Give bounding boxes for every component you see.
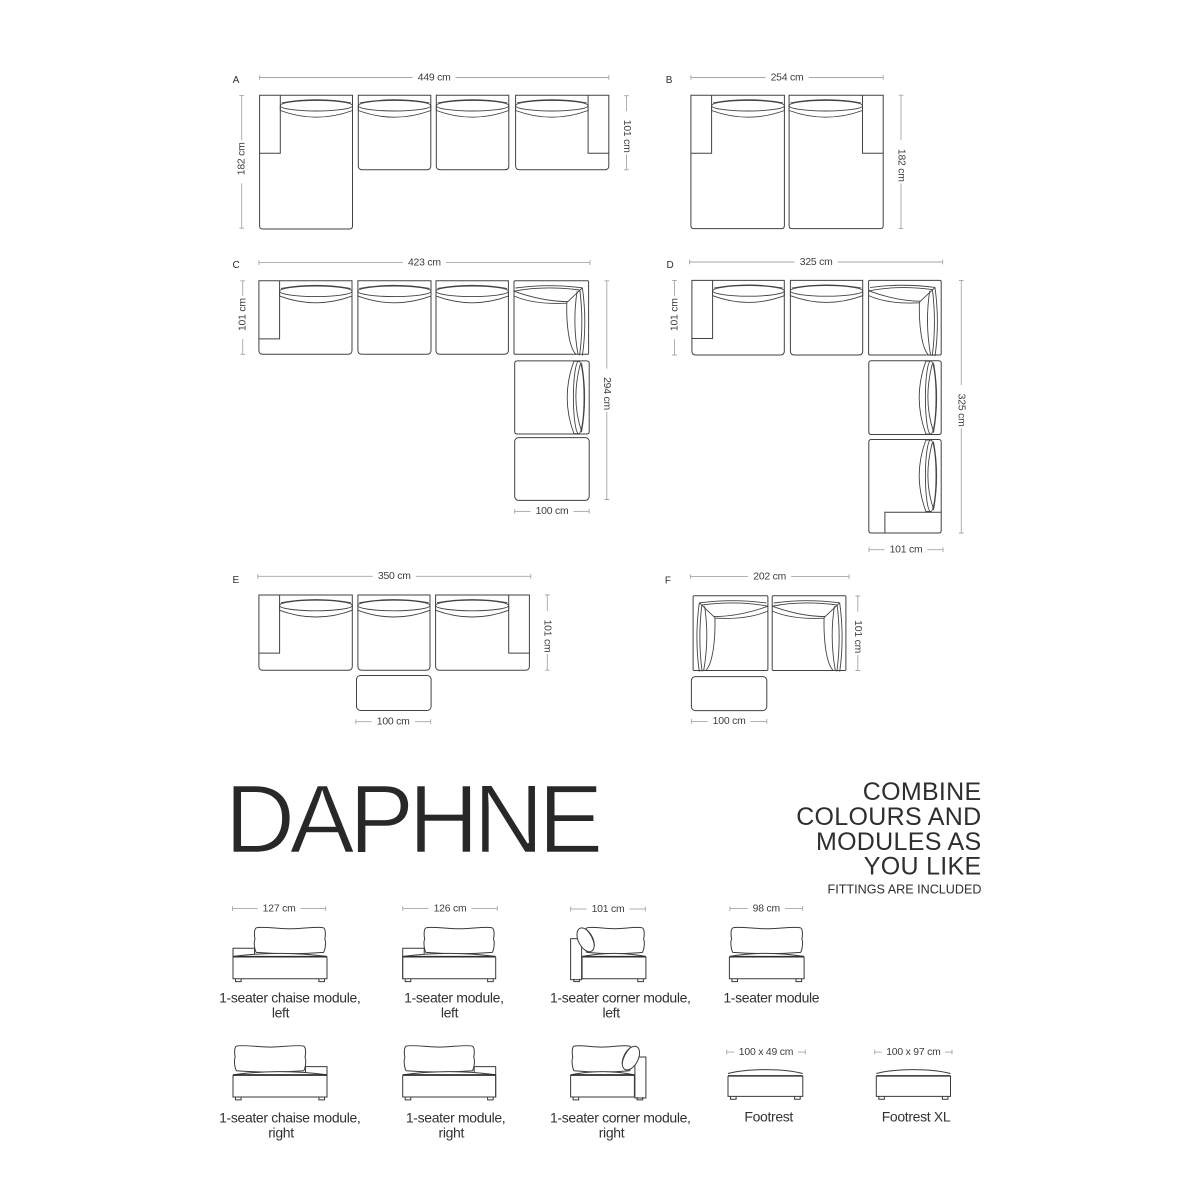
svg-text:A: A [233,75,240,86]
svg-text:101 cm: 101 cm [669,298,680,331]
svg-text:right: right [599,1124,625,1140]
svg-text:182 cm: 182 cm [895,149,906,182]
svg-text:101 cm: 101 cm [592,904,625,915]
svg-text:202 cm: 202 cm [753,571,786,582]
svg-text:126 cm: 126 cm [434,903,467,914]
svg-text:127 cm: 127 cm [263,903,296,914]
svg-text:182 cm: 182 cm [237,142,248,175]
svg-text:100 cm: 100 cm [536,506,569,517]
svg-text:E: E [233,575,240,586]
svg-text:FITTINGS ARE INCLUDED: FITTINGS ARE INCLUDED [828,883,982,897]
svg-text:100 cm: 100 cm [713,716,746,727]
svg-text:101 cm: 101 cm [238,298,249,331]
svg-text:100 x 97 cm: 100 x 97 cm [886,1047,940,1058]
svg-text:COLOURS AND: COLOURS AND [796,803,981,831]
svg-text:325 cm: 325 cm [956,394,967,427]
svg-text:294 cm: 294 cm [601,377,612,410]
svg-text:COMBINE: COMBINE [863,778,982,806]
svg-text:right: right [268,1124,294,1140]
svg-text:C: C [233,260,240,271]
svg-text:100 cm: 100 cm [377,717,410,728]
svg-text:YOU LIKE: YOU LIKE [864,853,982,881]
svg-text:1-seater corner module,: 1-seater corner module, [550,1109,691,1125]
svg-text:MODULES AS: MODULES AS [816,828,982,856]
svg-text:254 cm: 254 cm [771,72,804,83]
svg-text:D: D [667,260,674,271]
svg-text:101 cm: 101 cm [890,545,923,556]
svg-text:101 cm: 101 cm [852,620,863,653]
svg-text:1-seater module,: 1-seater module, [404,990,503,1006]
svg-text:left: left [272,1005,290,1021]
svg-text:left: left [441,1005,459,1021]
svg-text:325 cm: 325 cm [800,257,833,268]
svg-text:101 cm: 101 cm [621,120,632,153]
svg-text:1-seater corner module,: 1-seater corner module, [550,990,691,1006]
svg-text:350 cm: 350 cm [378,571,411,582]
svg-text:1-seater chaise module,: 1-seater chaise module, [219,1109,360,1125]
svg-text:left: left [602,1005,620,1021]
svg-text:101 cm: 101 cm [542,620,553,653]
svg-text:449 cm: 449 cm [418,72,451,83]
svg-text:1-seater chaise module,: 1-seater chaise module, [219,990,360,1006]
svg-text:F: F [665,576,671,587]
svg-text:DAPHNE: DAPHNE [225,765,599,874]
svg-text:423 cm: 423 cm [408,257,441,268]
svg-text:Footrest XL: Footrest XL [882,1109,951,1125]
svg-text:1-seater module,: 1-seater module, [406,1109,505,1125]
svg-text:B: B [666,75,673,86]
svg-text:98 cm: 98 cm [753,903,780,914]
svg-text:1-seater module: 1-seater module [723,990,819,1006]
svg-text:Footrest: Footrest [744,1109,793,1125]
svg-text:100 x 49 cm: 100 x 49 cm [739,1047,793,1058]
svg-text:right: right [439,1124,465,1140]
